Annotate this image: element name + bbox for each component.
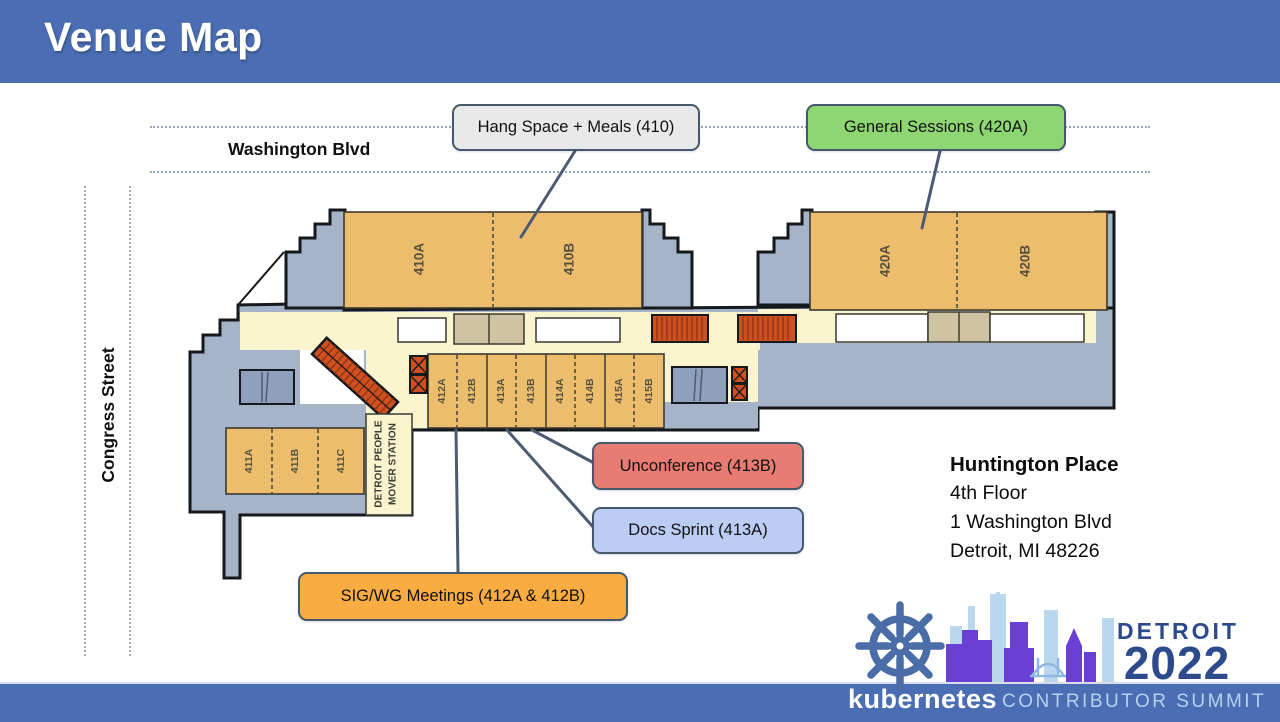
corridor-opening-1 (398, 318, 446, 342)
corridor-opening-3 (836, 314, 928, 342)
room-label-410b: 410B (562, 243, 577, 276)
mass-patch-east (663, 402, 758, 428)
logo-year-text: 2022 (1112, 636, 1242, 690)
callout-hang-space-label: Hang Space + Meals (410) (478, 118, 675, 137)
venue-street: 1 Washington Blvd (950, 508, 1119, 537)
leader-docs-sprint (507, 430, 594, 528)
escalator-corridor-2 (738, 315, 796, 342)
corridor-opening-4 (990, 314, 1084, 342)
detroit-skyline-graphic (946, 592, 1118, 684)
room-label-410a: 410A (412, 243, 427, 276)
flank-410-left (286, 210, 345, 308)
callout-hang-space: Hang Space + Meals (410) (452, 104, 700, 151)
room-label-413b: 413B (525, 378, 537, 404)
stairs-west (410, 356, 427, 393)
flank-410-right (642, 210, 692, 308)
leader-unconference (532, 430, 594, 463)
room-label-411b: 411B (289, 448, 301, 473)
callout-docs-sprint: Docs Sprint (413A) (592, 507, 804, 554)
venue-name: Huntington Place (950, 450, 1119, 479)
callout-unconference: Unconference (413B) (592, 442, 804, 490)
contributor-summit-text: CONTRIBUTOR SUMMIT (1002, 691, 1266, 713)
kubernetes-wordmark: kubernetes (848, 684, 997, 715)
leader-sig-wg (456, 430, 458, 572)
venue-address: Huntington Place 4th Floor 1 Washington … (950, 450, 1119, 566)
building-connector-line (238, 252, 284, 305)
station-label-line2: MOVER STATION (388, 423, 399, 505)
venue-city: Detroit, MI 48226 (950, 537, 1119, 566)
callout-sig-wg: SIG/WG Meetings (412A & 412B) (298, 572, 628, 621)
room-label-420b: 420B (1018, 245, 1033, 278)
room-label-415b: 415B (643, 378, 655, 404)
room-label-412b: 412B (466, 378, 478, 404)
room-label-414a: 414A (554, 378, 566, 404)
room-420 (810, 212, 1107, 310)
callout-sig-wg-label: SIG/WG Meetings (412A & 412B) (341, 587, 586, 606)
room-label-415a: 415A (613, 378, 625, 404)
venue-floor: 4th Floor (950, 479, 1119, 508)
escalator-corridor-1 (652, 315, 708, 342)
station-label-line1: DETROIT PEOPLE (374, 420, 385, 508)
room-label-414b: 414B (584, 378, 596, 404)
flank-420-left (758, 210, 812, 305)
room-label-411c: 411C (335, 448, 347, 473)
room-label-413a: 413A (495, 378, 507, 404)
room-label-411a: 411A (243, 448, 255, 473)
corridor-opening-2 (536, 318, 620, 342)
room-label-420a: 420A (878, 245, 893, 278)
callout-general-sessions-label: General Sessions (420A) (844, 118, 1028, 137)
callout-unconference-label: Unconference (413B) (620, 457, 777, 476)
callout-general-sessions: General Sessions (420A) (806, 104, 1066, 151)
callout-docs-sprint-label: Docs Sprint (413A) (628, 521, 767, 540)
stairs-east (732, 367, 747, 400)
room-label-412a: 412A (436, 378, 448, 404)
kubernetes-wheel-icon (846, 598, 956, 694)
